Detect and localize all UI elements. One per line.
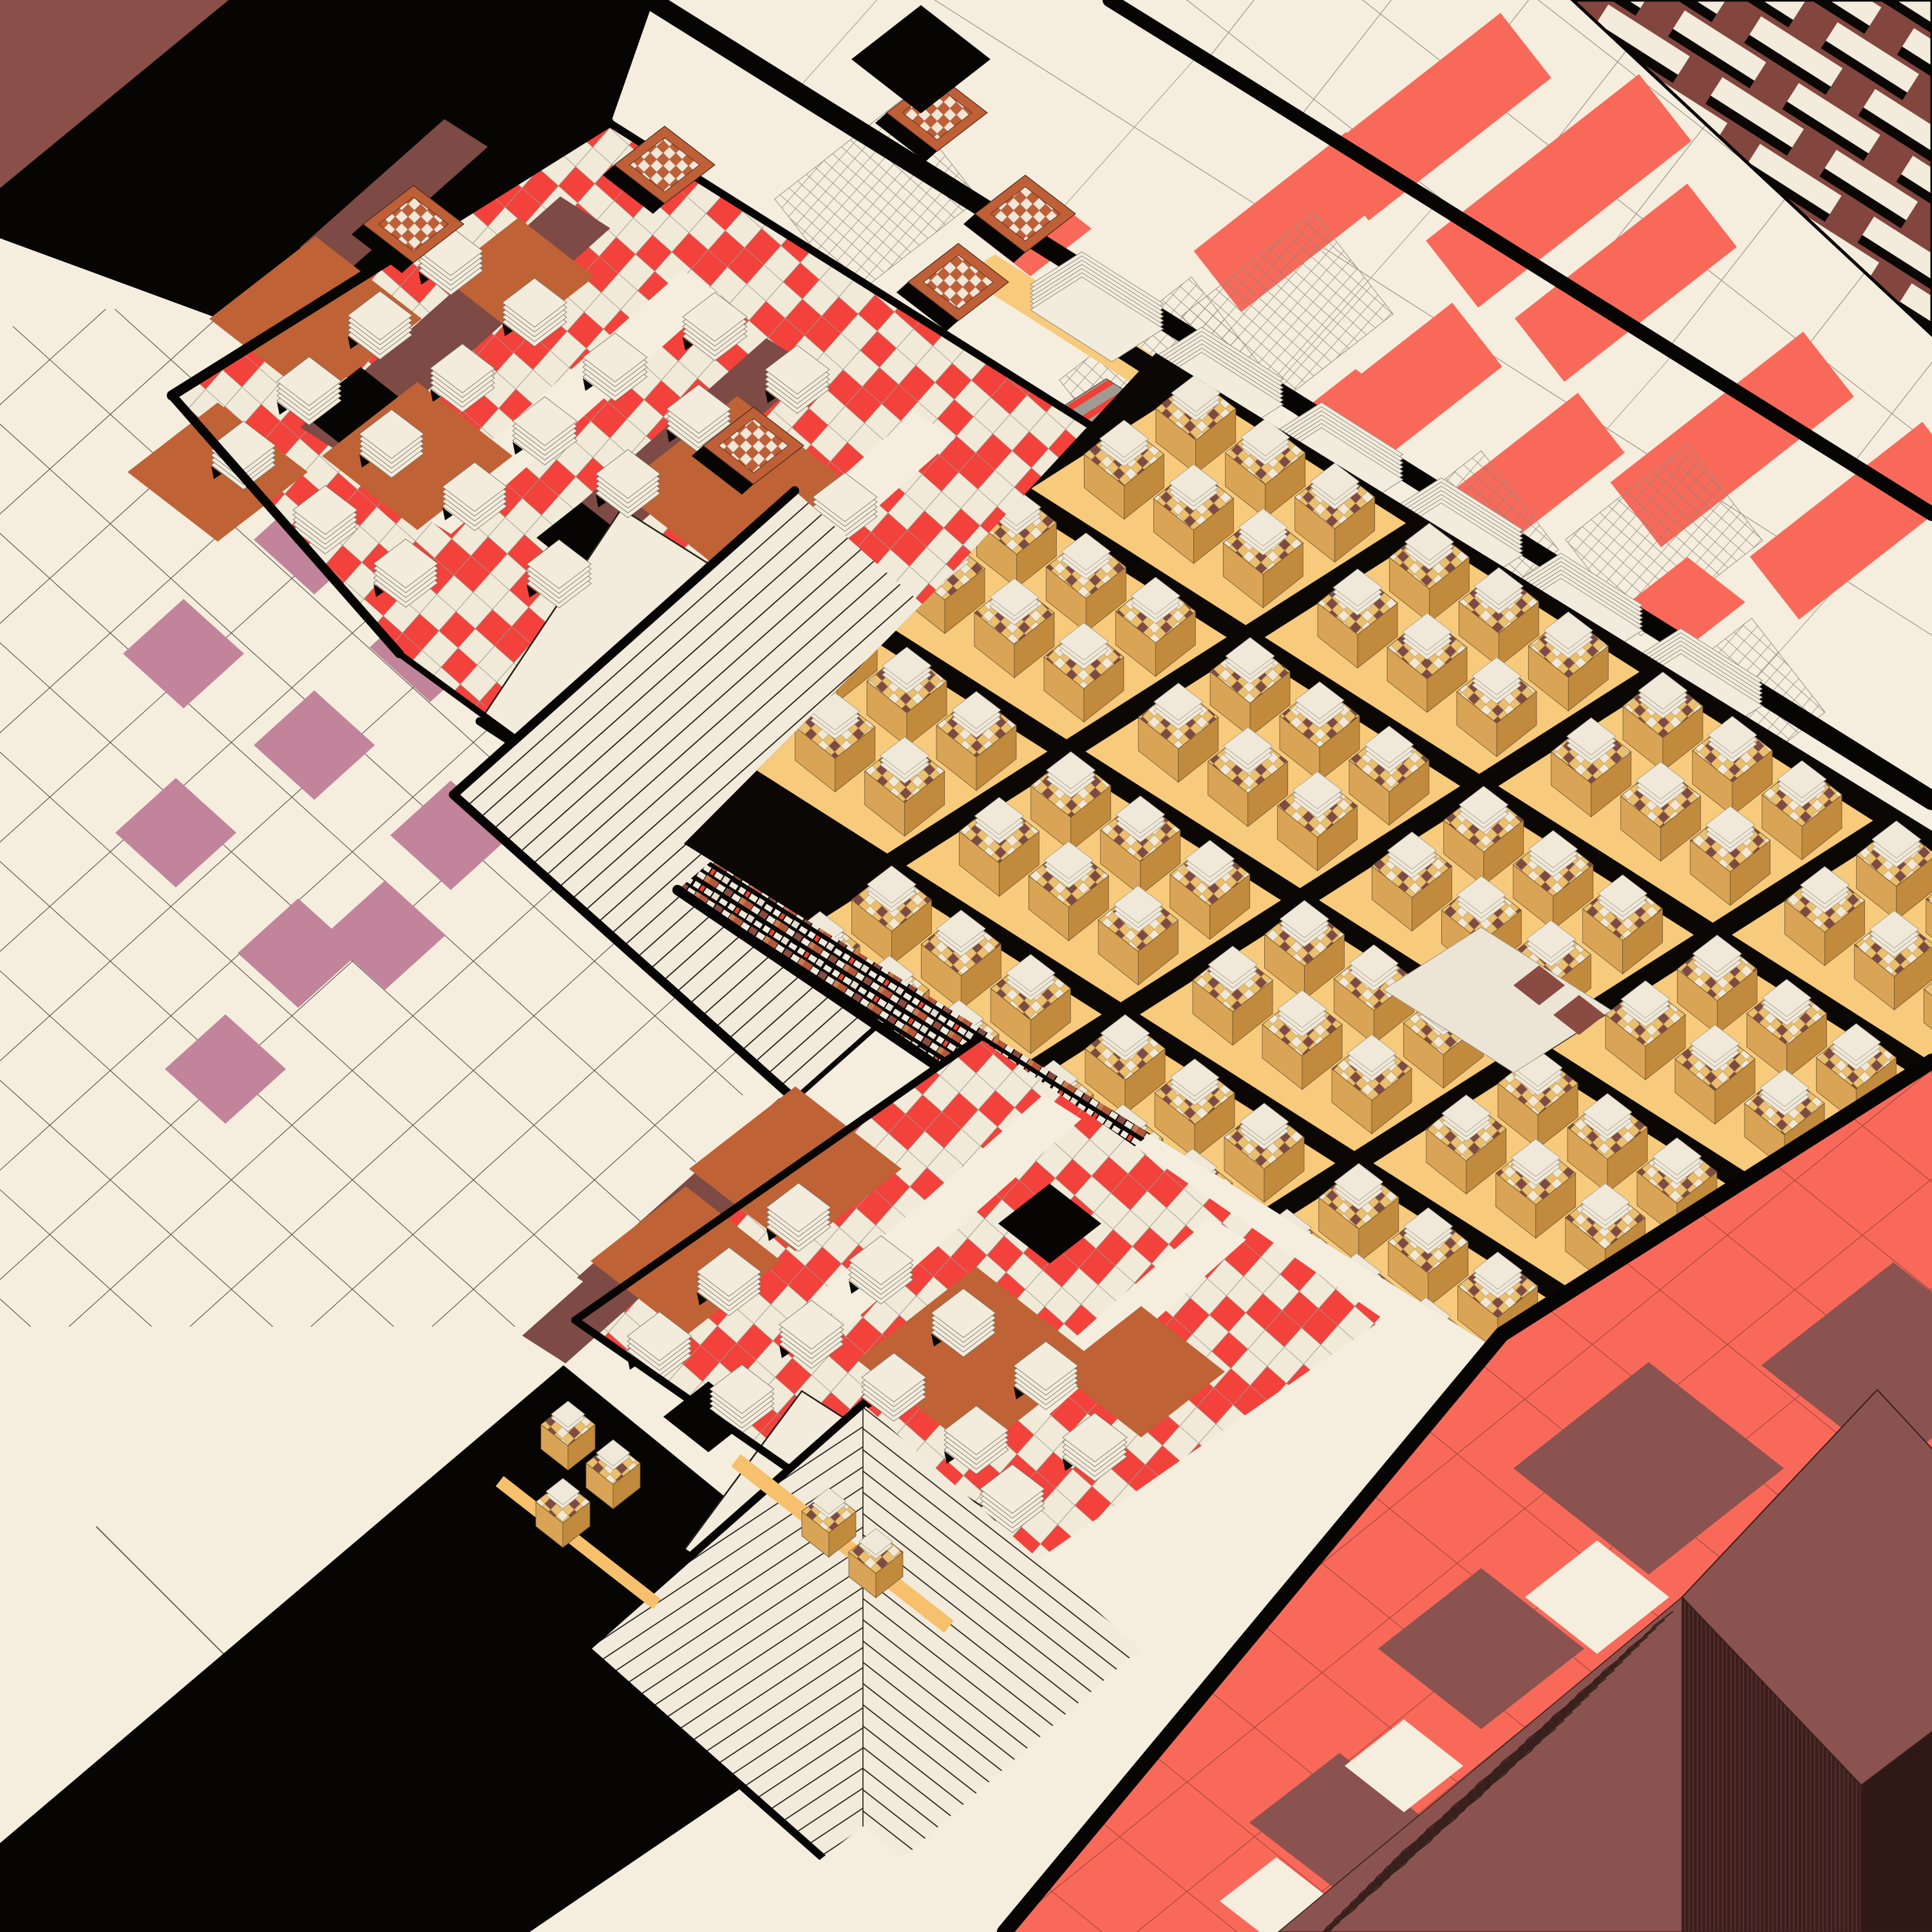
artwork-canvas (0, 0, 1932, 1932)
isometric-city-artwork (0, 0, 1932, 1932)
